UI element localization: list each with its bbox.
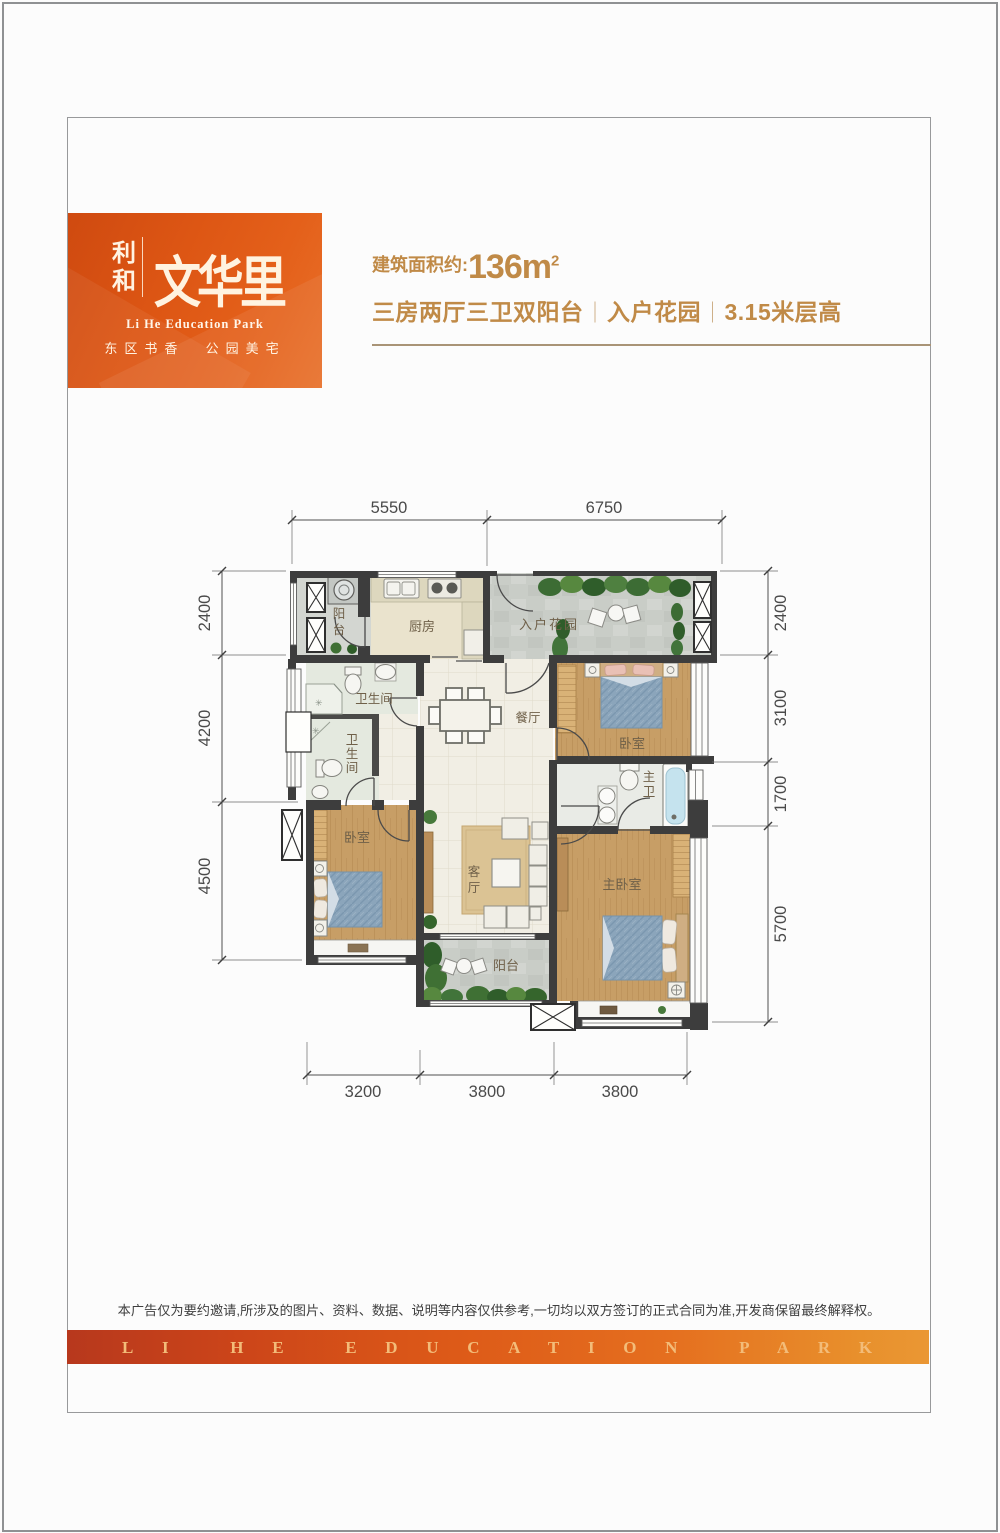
svg-text:台: 台 — [333, 622, 346, 637]
svg-text:4200: 4200 — [196, 710, 214, 747]
svg-text:3100: 3100 — [772, 690, 790, 727]
svg-text:生: 生 — [346, 747, 359, 761]
svg-text:卧室: 卧室 — [619, 736, 645, 751]
svg-text:间: 间 — [346, 761, 359, 775]
svg-text:阳台: 阳台 — [493, 958, 519, 973]
svg-text:3800: 3800 — [602, 1083, 639, 1101]
svg-text:2400: 2400 — [772, 595, 790, 632]
svg-text:✳: ✳ — [315, 698, 323, 708]
svg-text:主: 主 — [643, 770, 656, 784]
svg-text:入户花园: 入户花园 — [519, 617, 579, 632]
svg-text:✳: ✳ — [312, 726, 320, 736]
svg-text:厅: 厅 — [468, 881, 481, 895]
svg-text:5700: 5700 — [772, 906, 790, 943]
svg-text:卫生间: 卫生间 — [355, 692, 393, 706]
svg-text:阳: 阳 — [333, 607, 346, 621]
svg-text:餐厅: 餐厅 — [515, 710, 540, 725]
svg-text:3800: 3800 — [469, 1083, 506, 1101]
svg-text:厨房: 厨房 — [409, 619, 435, 634]
svg-text:客: 客 — [468, 864, 481, 879]
svg-text:6750: 6750 — [586, 499, 623, 517]
svg-text:1700: 1700 — [772, 776, 790, 813]
svg-text:2400: 2400 — [196, 595, 214, 632]
svg-text:卫: 卫 — [346, 733, 359, 747]
svg-text:主卧室: 主卧室 — [602, 877, 641, 892]
svg-text:卫: 卫 — [643, 785, 656, 799]
svg-text:4500: 4500 — [196, 858, 214, 895]
svg-text:3200: 3200 — [345, 1083, 382, 1101]
svg-text:5550: 5550 — [371, 499, 408, 517]
svg-text:卧室: 卧室 — [344, 830, 370, 845]
